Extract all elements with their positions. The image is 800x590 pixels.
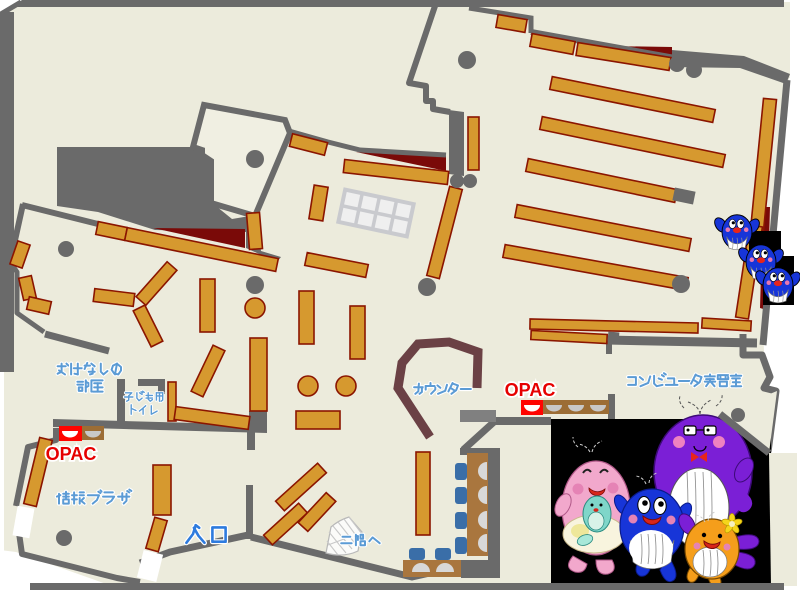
svg-text:OPAC: OPAC — [46, 444, 97, 464]
svg-text:OPAC: OPAC — [505, 380, 556, 400]
